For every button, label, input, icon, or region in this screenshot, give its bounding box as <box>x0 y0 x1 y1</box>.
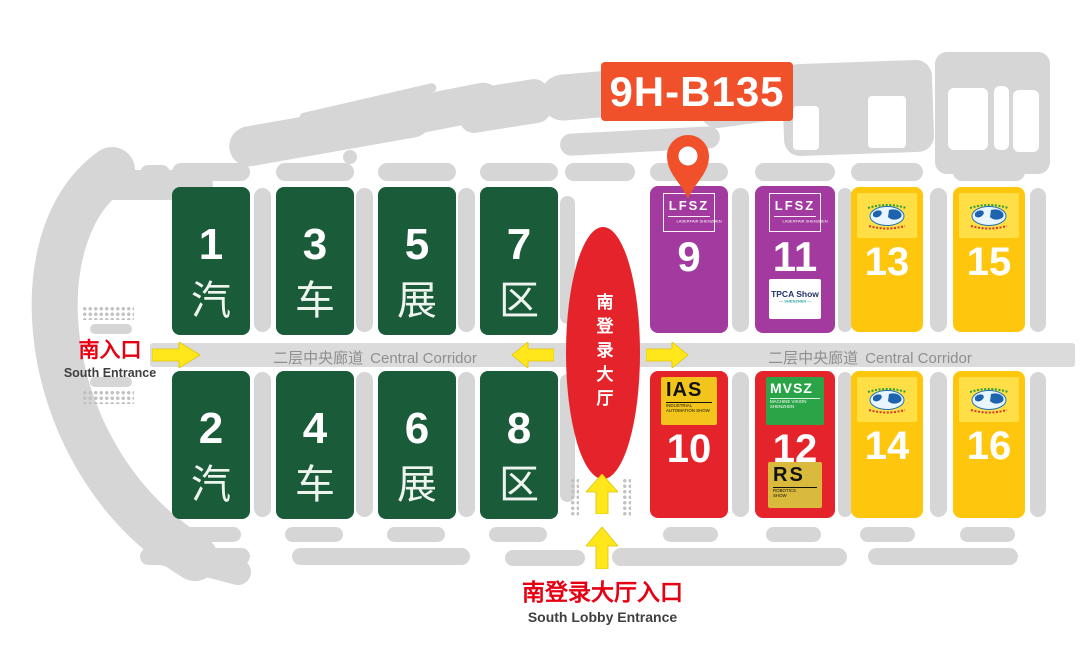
booth-badge: 9H-B135 <box>601 62 793 121</box>
hall-number: 5 <box>405 223 429 267</box>
ias-logo-title: IAS <box>666 380 712 403</box>
globe-logo <box>959 377 1019 422</box>
roof-window <box>793 106 819 150</box>
roof-window <box>868 96 906 148</box>
south-entrance-label: 南入口 South Entrance <box>55 334 165 380</box>
divider-pill <box>1030 372 1046 517</box>
roof-knob <box>343 150 357 164</box>
walkway-pill <box>860 527 915 542</box>
walkway-pill <box>276 163 354 181</box>
lfsz-logo-subtitle: LASERFAIR SHENZHEN <box>783 219 808 224</box>
hall-5: 5 展 <box>378 187 456 335</box>
hall-9: LFSZ LASERFAIR SHENZHEN 9 <box>650 186 728 333</box>
divider-pill <box>838 188 852 332</box>
hall-cjk-label: 展 <box>397 281 437 321</box>
central-corridor-label-left: 二层中央廊道Central Corridor <box>255 347 495 368</box>
walkway-pill <box>565 163 635 181</box>
hall-3: 3 车 <box>276 187 354 335</box>
globe-logo-icon <box>863 385 911 415</box>
divider-pill <box>930 188 947 332</box>
walkway-pill <box>663 527 718 542</box>
hall-4: 4 车 <box>276 371 354 519</box>
divider-pill <box>356 372 373 517</box>
divider-pill <box>732 372 749 517</box>
walkway-pill <box>172 163 250 181</box>
hall-number: 11 <box>773 236 817 278</box>
walkway-pill <box>90 324 132 334</box>
hall-number: 2 <box>199 407 223 451</box>
walkway-pill <box>480 163 558 181</box>
divider-pill <box>838 372 852 517</box>
walkway-pill <box>292 548 470 565</box>
hall-8: 8 区 <box>480 371 558 519</box>
walkway-pill <box>140 165 170 181</box>
tpca-show-logo: TPCA Show SHENZHEN <box>769 279 821 319</box>
globe-logo-icon <box>965 385 1013 415</box>
hall-number: 13 <box>865 242 910 282</box>
dot-column <box>570 478 579 516</box>
globe-logo <box>959 193 1019 238</box>
hall-number: 4 <box>303 407 327 451</box>
hall-number: 6 <box>405 407 429 451</box>
rs-logo-subtitle: ROBOTICS SHOW <box>773 488 797 498</box>
lfsz-logo-subtitle: LASERFAIR SHENZHEN <box>677 219 702 224</box>
roof-window <box>994 86 1009 150</box>
rs-logo-title: RS <box>773 465 817 488</box>
roof-window <box>1013 90 1039 152</box>
south-lobby-entrance-label: 南登录大厅入口 South Lobby Entrance <box>485 573 720 625</box>
hall-cjk-label: 区 <box>499 465 539 505</box>
hall-cjk-label: 汽 <box>191 465 231 505</box>
divider-pill <box>458 372 475 517</box>
globe-logo <box>857 377 917 422</box>
hall-number: 16 <box>967 426 1012 466</box>
arrow-right-icon <box>646 342 688 368</box>
ias-logo-subtitle: INDUSTRIAL AUTOMATION SHOW <box>666 403 713 413</box>
mvsz-logo-title: MVSZ <box>770 381 820 399</box>
corridor-label-zh: 二层中央廊道 <box>273 350 363 367</box>
globe-logo <box>857 193 917 238</box>
dot-grid <box>82 306 134 320</box>
walkway-pill <box>755 163 835 181</box>
hall-cjk-label: 区 <box>499 281 539 321</box>
lfsz-logo: LFSZ LASERFAIR SHENZHEN <box>769 193 821 232</box>
lfsz-logo-title: LFSZ <box>774 198 816 217</box>
hall-cjk-label: 汽 <box>191 281 231 321</box>
hall-2: 2 汽 <box>172 371 250 519</box>
divider-pill <box>930 372 947 517</box>
hall-number: 1 <box>199 223 223 267</box>
divider-pill <box>254 188 271 332</box>
walkway-pill <box>868 548 1018 565</box>
hall-cjk-label: 展 <box>397 465 437 505</box>
arrow-up-icon <box>586 474 618 514</box>
divider-pill <box>1030 188 1046 332</box>
central-corridor-label-right: 二层中央廊道Central Corridor <box>745 347 995 368</box>
mvsz-logo: MVSZ MACHINE VISION SHENZHEN <box>766 377 824 425</box>
walkway-pill <box>140 548 250 565</box>
hall-13: 13 <box>851 187 923 332</box>
walkway-pill <box>953 163 1025 181</box>
south-entrance-zh: 南入口 <box>55 334 165 364</box>
south-lobby-label: 南登录大厅 <box>591 293 616 413</box>
corridor-label-zh: 二层中央廊道 <box>768 350 858 367</box>
walkway-pill <box>489 527 547 542</box>
walkway-pill <box>378 163 456 181</box>
dot-column <box>622 478 631 516</box>
location-pin-icon <box>661 130 715 202</box>
walkway-pill <box>766 527 821 542</box>
hall-number: 9 <box>677 236 700 278</box>
hall-number: 8 <box>507 407 531 451</box>
hall-14: 14 <box>851 371 923 518</box>
divider-pill <box>356 188 373 332</box>
roof-window <box>948 88 988 150</box>
hall-6: 6 展 <box>378 371 456 519</box>
walkway-pill <box>387 527 445 542</box>
exhibition-floor-map: 二层中央廊道Central Corridor 二层中央廊道Central Cor… <box>0 0 1080 666</box>
hall-number: 14 <box>865 426 910 466</box>
hall-7: 7 区 <box>480 187 558 335</box>
hall-cjk-label: 车 <box>295 465 335 505</box>
walkway-pill <box>285 527 343 542</box>
walkway-pill <box>612 548 847 566</box>
hall-10: IAS INDUSTRIAL AUTOMATION SHOW 10 <box>650 371 728 518</box>
hall-number: 15 <box>967 242 1012 282</box>
ias-logo: IAS INDUSTRIAL AUTOMATION SHOW <box>661 377 717 425</box>
mvsz-logo-subtitle: MACHINE VISION SHENZHEN <box>770 399 814 409</box>
hall-cjk-label: 车 <box>295 281 335 321</box>
hall-number: 10 <box>667 429 712 469</box>
south-lobby-entrance-zh: 南登录大厅入口 <box>485 573 720 607</box>
hall-number: 3 <box>303 223 327 267</box>
walkway-pill <box>960 527 1015 542</box>
walkway-pill <box>851 163 923 181</box>
arrow-left-icon <box>512 342 554 368</box>
south-entrance-en: South Entrance <box>55 366 165 380</box>
booth-badge-label: 9H-B135 <box>609 68 784 116</box>
hall-number: 7 <box>507 223 531 267</box>
hall-11: LFSZ LASERFAIR SHENZHEN 11 TPCA Show SHE… <box>755 186 835 333</box>
dot-grid <box>82 390 134 404</box>
hall-12: MVSZ MACHINE VISION SHENZHEN 12 RS ROBOT… <box>755 371 835 518</box>
hall-1: 1 汽 <box>172 187 250 335</box>
hall-15: 15 <box>953 187 1025 332</box>
corridor-label-en: Central Corridor <box>865 350 972 367</box>
corridor-label-en: Central Corridor <box>370 350 477 367</box>
south-lobby: 南登录大厅 <box>566 227 640 479</box>
tpca-logo-title: TPCA Show <box>771 289 819 299</box>
globe-logo-icon <box>965 201 1013 231</box>
globe-logo-icon <box>863 201 911 231</box>
walkway-pill <box>505 550 585 566</box>
divider-pill <box>254 372 271 517</box>
walkway-pill <box>183 527 241 542</box>
rs-logo: RS ROBOTICS SHOW <box>768 462 822 508</box>
arrow-up-icon <box>586 527 618 569</box>
divider-pill <box>732 188 749 332</box>
south-lobby-entrance-en: South Lobby Entrance <box>485 609 720 625</box>
building-outline-left-wing <box>0 0 320 666</box>
hall-16: 16 <box>953 371 1025 518</box>
tpca-logo-subtitle: SHENZHEN <box>779 299 811 304</box>
divider-pill <box>458 188 475 332</box>
